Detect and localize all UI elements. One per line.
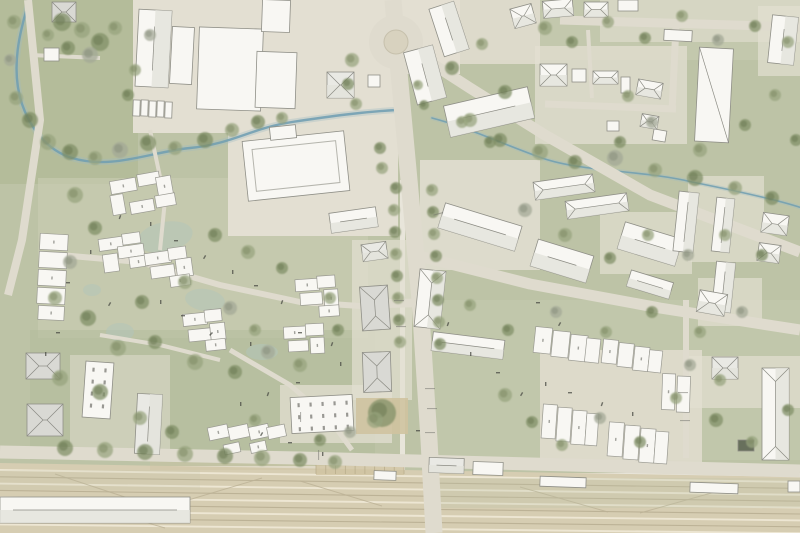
building-footprint	[368, 75, 380, 87]
tree-crown	[278, 264, 285, 271]
site-mark	[181, 315, 185, 316]
micro-annotation	[425, 432, 435, 433]
tree-crown	[711, 415, 719, 423]
tree-crown	[295, 455, 303, 463]
tree-crown	[394, 294, 401, 301]
tree-crown	[227, 125, 235, 133]
tree-crown	[560, 230, 568, 238]
building	[242, 131, 350, 201]
tree-crown	[428, 186, 435, 193]
building	[368, 75, 380, 87]
building	[652, 129, 667, 142]
tree-crown	[414, 81, 420, 87]
tree-crown	[189, 356, 198, 365]
interior-mark	[299, 427, 301, 431]
cluster-building	[102, 253, 119, 273]
tree-crown	[378, 164, 385, 171]
building-footprint	[374, 471, 396, 481]
tree-crown	[500, 87, 508, 95]
interior-mark	[311, 426, 313, 430]
site-mark	[240, 402, 241, 406]
tree-crown	[146, 31, 153, 38]
tree-crown	[55, 15, 65, 25]
building	[269, 125, 296, 141]
tree-crown	[347, 55, 355, 63]
tree-crown	[641, 34, 648, 41]
building	[361, 241, 388, 261]
roof-shade	[593, 78, 618, 85]
tree-crown	[540, 23, 548, 31]
cluster-mark	[317, 344, 319, 347]
micro-annotation	[680, 420, 690, 421]
building	[261, 0, 290, 32]
tree-crown	[219, 450, 228, 459]
building	[359, 285, 390, 331]
tree-crown	[326, 294, 333, 301]
tree-crown	[644, 231, 651, 238]
cluster-mark	[548, 420, 550, 423]
tree-crown	[278, 114, 285, 121]
tree-crown	[447, 63, 455, 71]
tree-crown	[486, 138, 493, 145]
tree-crown	[251, 326, 258, 333]
tree-crown	[570, 157, 578, 165]
tree-crown	[42, 136, 51, 145]
cluster-mark	[51, 276, 53, 279]
tree-crown	[392, 184, 399, 191]
tree-crown	[716, 376, 723, 383]
building	[618, 0, 638, 11]
tree-crown	[225, 303, 233, 311]
tree-crown	[721, 231, 728, 238]
tree-crown	[54, 372, 63, 381]
building-footprint	[197, 27, 264, 111]
building	[135, 9, 172, 88]
interior-mark	[346, 413, 348, 417]
site-mark	[232, 270, 233, 274]
building	[584, 2, 608, 17]
cluster-building	[39, 251, 68, 268]
building	[429, 457, 465, 473]
building-footprint	[133, 100, 141, 116]
interior-mark	[310, 415, 312, 419]
tree-crown	[334, 326, 341, 333]
building-footprint	[473, 461, 503, 475]
tree-crown	[251, 416, 258, 423]
building-footprint	[540, 476, 586, 488]
tree-crown	[478, 40, 485, 47]
interior-mark	[322, 414, 324, 418]
tree-crown	[784, 38, 791, 45]
building	[664, 29, 693, 41]
micro-annotation	[318, 450, 319, 460]
rail-grass-tint	[0, 470, 200, 490]
roof-line	[522, 16, 524, 17]
cluster-mark	[50, 311, 52, 314]
site-plan-svg	[0, 0, 800, 533]
tree-crown	[139, 446, 148, 455]
tree-crown	[263, 347, 271, 355]
interior-mark	[90, 403, 92, 407]
tree-crown	[741, 121, 748, 128]
tree-crown	[602, 328, 609, 335]
building	[362, 352, 391, 393]
building	[133, 100, 141, 116]
interior-mark	[102, 404, 104, 408]
building	[0, 497, 190, 523]
cluster-building	[556, 407, 572, 442]
building-footprint	[664, 29, 693, 41]
site-mark	[250, 342, 251, 346]
micro-annotation	[394, 300, 404, 301]
tree-crown	[393, 272, 400, 279]
cluster-mark	[647, 444, 649, 447]
roof-shade	[429, 465, 464, 474]
tree-crown	[110, 23, 118, 31]
tree-crown	[114, 144, 123, 153]
tree-crown	[604, 18, 611, 25]
building	[27, 404, 63, 436]
road	[545, 104, 676, 109]
tree-crown	[616, 138, 623, 145]
tree-crown	[738, 308, 745, 315]
site-plan-page	[0, 0, 800, 533]
tree-crown	[253, 117, 261, 125]
tree-crown	[433, 274, 440, 281]
tree-crown	[648, 308, 655, 315]
rail-grass-tint	[430, 478, 800, 508]
interior-mark	[334, 413, 336, 417]
tree-crown	[396, 338, 403, 345]
tree-crown	[552, 308, 559, 315]
tree-crown	[63, 43, 71, 51]
tree-crown	[689, 172, 698, 181]
tree-crown	[90, 153, 98, 161]
building	[165, 102, 173, 118]
interior-mark	[333, 401, 335, 405]
tree-crown	[420, 101, 426, 107]
tree-crown	[696, 328, 703, 335]
site-mark	[340, 362, 341, 366]
building	[157, 101, 165, 117]
tree-crown	[50, 293, 58, 301]
interior-mark	[321, 402, 323, 406]
tree-crown	[650, 165, 658, 173]
cluster-building	[584, 338, 600, 363]
tree-crown	[295, 360, 303, 368]
building-footprint	[149, 101, 157, 117]
building	[290, 394, 354, 433]
building	[572, 69, 586, 82]
tree-crown	[636, 438, 643, 445]
building-footprint	[157, 101, 165, 117]
building	[473, 461, 503, 475]
tree-crown	[558, 441, 565, 448]
housing-cluster	[36, 233, 68, 320]
site-mark	[632, 412, 633, 416]
site-mark	[545, 382, 546, 386]
tree-crown	[64, 146, 73, 155]
tree-crown	[686, 361, 693, 368]
tree-crown	[458, 118, 465, 125]
tree-crown	[316, 436, 323, 443]
building-footprint	[788, 481, 800, 492]
building-footprint	[269, 125, 296, 141]
building	[690, 482, 738, 494]
building	[141, 100, 149, 116]
tree-crown	[714, 36, 721, 43]
site-mark	[56, 332, 60, 333]
interior-mark	[345, 401, 347, 405]
cluster-building	[648, 350, 663, 373]
roof-shade	[540, 75, 567, 86]
site-mark	[150, 222, 151, 226]
site-mark	[90, 250, 91, 254]
roof-shade	[0, 510, 190, 523]
site-mark	[296, 382, 300, 383]
cluster-building	[122, 232, 141, 245]
building-footprint	[255, 51, 297, 108]
tree-crown	[748, 438, 755, 445]
micro-annotation	[300, 412, 301, 422]
micro-annotation	[425, 388, 435, 389]
interior-mark	[92, 368, 94, 372]
site-mark	[298, 332, 302, 333]
tree-crown	[784, 406, 791, 413]
tree-crown	[369, 414, 378, 423]
tree-crown	[596, 414, 603, 421]
tree-crown	[429, 208, 436, 215]
roundabout-island	[384, 30, 408, 54]
tree-crown	[90, 223, 98, 231]
tree-crown	[792, 136, 799, 143]
tree-crown	[84, 49, 93, 58]
tree-crown	[256, 452, 265, 461]
tree-crown	[624, 92, 631, 99]
cluster-mark	[328, 309, 330, 312]
interior-mark	[104, 368, 106, 372]
site-mark	[160, 300, 161, 304]
tree-crown	[142, 137, 151, 146]
site-mark	[416, 430, 420, 431]
building	[761, 212, 790, 235]
cluster-mark	[668, 390, 670, 393]
micro-annotation	[427, 408, 437, 409]
building	[255, 51, 297, 108]
tree-crown	[93, 35, 103, 45]
tree-crown	[435, 318, 442, 325]
micro-annotation	[678, 392, 688, 393]
tree-crown	[504, 326, 511, 333]
micro-annotation	[396, 326, 406, 327]
cluster-mark	[294, 331, 296, 334]
building-footprint	[572, 69, 586, 82]
tree-crown	[94, 386, 103, 395]
building	[170, 26, 195, 84]
tree-crown	[344, 80, 351, 87]
cluster-building	[551, 330, 571, 358]
tree-crown	[135, 413, 143, 421]
tree-crown	[771, 91, 778, 98]
interior-mark	[297, 403, 299, 407]
tree-crown	[606, 253, 613, 260]
tree-crown	[466, 301, 473, 308]
pond	[83, 284, 101, 296]
tree-crown	[528, 418, 535, 425]
building	[593, 71, 618, 84]
tree-crown	[758, 251, 765, 258]
tree-crown	[131, 66, 138, 73]
building	[788, 481, 800, 492]
tree-crown	[65, 257, 73, 265]
site-mark	[496, 372, 500, 373]
tree-crown	[376, 144, 383, 151]
building-footprint	[170, 26, 195, 84]
tree-crown	[391, 228, 398, 235]
tree-crown	[170, 143, 178, 151]
building	[695, 47, 734, 143]
building	[696, 290, 727, 317]
tree-crown	[69, 189, 78, 198]
building	[607, 121, 619, 131]
cluster-building	[305, 323, 324, 336]
tree-crown	[751, 22, 758, 29]
building	[197, 27, 264, 111]
tree-crown	[199, 134, 208, 143]
interior-mark	[309, 403, 311, 407]
building	[149, 101, 157, 117]
site-mark	[174, 240, 178, 241]
site-mark	[322, 452, 323, 456]
tree-crown	[150, 337, 158, 345]
tree-crown	[568, 38, 575, 45]
tree-crown	[534, 146, 543, 155]
tree-crown	[352, 100, 359, 107]
tree-crown	[137, 297, 145, 305]
tree-crown	[6, 56, 13, 63]
cluster-building	[317, 275, 336, 288]
site-mark	[45, 352, 46, 356]
building	[540, 476, 586, 488]
tree-crown	[436, 340, 443, 347]
building	[542, 0, 573, 18]
tree-crown	[59, 442, 68, 451]
site-mark	[254, 285, 258, 286]
building-footprint	[652, 129, 667, 142]
tree-crown	[395, 316, 402, 323]
tree-crown	[82, 312, 91, 321]
tree-crown	[648, 118, 655, 125]
building-footprint	[261, 0, 290, 32]
tree-crown	[684, 251, 691, 258]
tree-crown	[609, 152, 618, 161]
building	[374, 471, 396, 481]
cluster-building	[204, 309, 222, 323]
tree-crown	[695, 145, 703, 153]
cluster-mark	[615, 438, 617, 441]
tree-crown	[500, 390, 508, 398]
tree-crown	[330, 457, 338, 465]
tree-crown	[430, 230, 437, 237]
tree-crown	[124, 91, 131, 98]
tree-crown	[767, 193, 775, 201]
building-footprint	[165, 102, 173, 118]
interior-mark	[103, 380, 105, 384]
cluster-mark	[578, 426, 580, 429]
cluster-building	[300, 292, 323, 306]
tree-crown	[390, 206, 397, 213]
building	[540, 64, 567, 86]
building-footprint	[690, 482, 738, 494]
tree-crown	[730, 183, 738, 191]
tree-crown	[346, 428, 353, 435]
tree-crown	[520, 205, 528, 213]
tree-crown	[167, 427, 175, 435]
cluster-building	[288, 340, 309, 352]
tree-crown	[210, 230, 218, 238]
tree-crown	[243, 247, 251, 255]
site-mark	[536, 302, 540, 303]
tree-crown	[392, 250, 399, 257]
tree-crown	[24, 114, 33, 123]
tree-crown	[672, 394, 679, 401]
tree-crown	[9, 17, 17, 25]
building-footprint	[44, 48, 59, 61]
tree-crown	[112, 342, 121, 351]
tree-crown	[76, 24, 85, 33]
tree-crown	[99, 444, 108, 453]
tree-crown	[11, 93, 19, 101]
tree-crown	[180, 277, 188, 285]
site-mark	[288, 442, 292, 443]
tree-crown	[434, 296, 441, 303]
tree-crown	[44, 31, 51, 38]
site-mark	[568, 392, 572, 393]
tree-crown	[179, 448, 188, 457]
interior-mark	[335, 425, 337, 429]
interior-mark	[323, 426, 325, 430]
cluster-mark	[53, 241, 55, 244]
cluster-building	[654, 431, 669, 464]
building-footprint	[618, 0, 638, 11]
cluster-mark	[306, 283, 308, 286]
cluster-building	[617, 343, 634, 368]
building-footprint	[141, 100, 149, 116]
building	[44, 48, 59, 61]
site-mark	[470, 352, 471, 356]
interior-mark	[91, 380, 93, 384]
tree-crown	[230, 367, 238, 375]
tree-crown	[432, 252, 439, 259]
tree-crown	[678, 12, 685, 19]
building-footprint	[607, 121, 619, 131]
site-mark	[66, 282, 70, 283]
